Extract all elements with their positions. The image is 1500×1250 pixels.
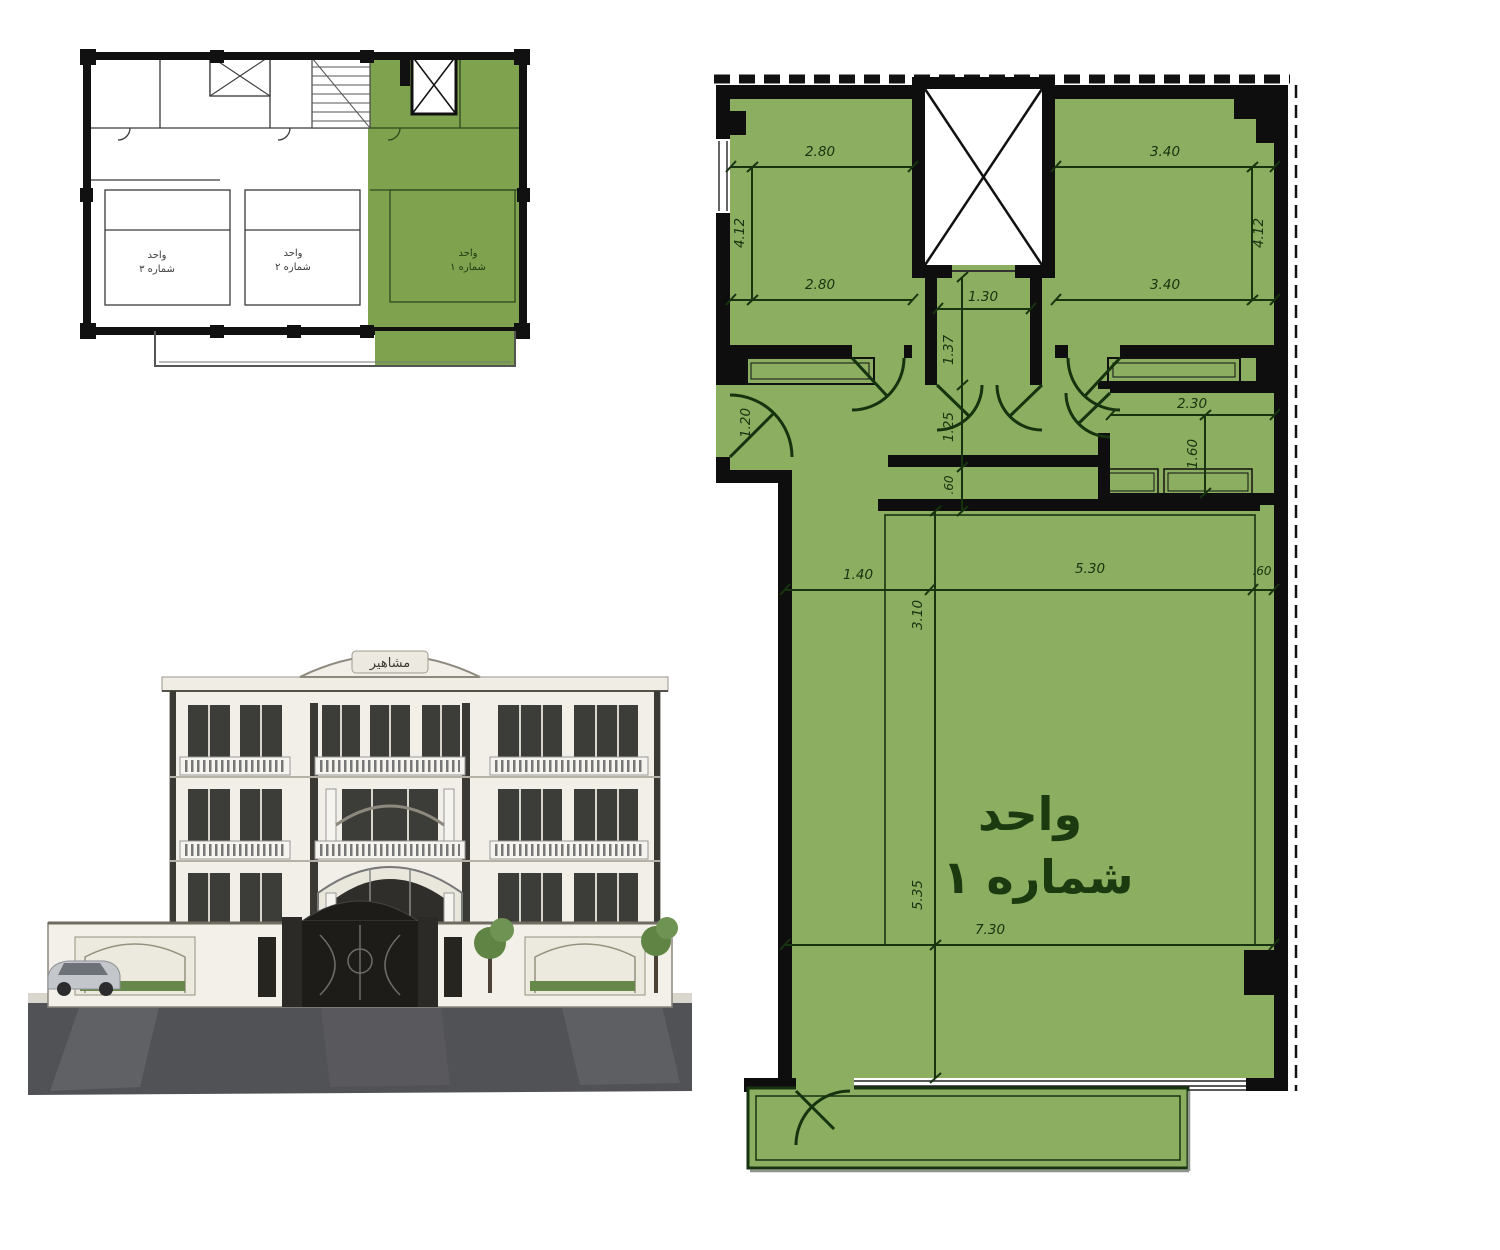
floor-overview-plan: واحد شماره ٣ واحد شماره ٢ واحد شماره ١ — [60, 40, 550, 380]
dim-lobby-height: 1.37 — [941, 335, 957, 365]
road — [28, 993, 692, 1095]
building-sign-text: مشاهیر — [369, 656, 410, 671]
dim-bed1-top: 2.80 — [805, 144, 835, 160]
overview-balcony — [155, 331, 515, 366]
overview-unit1-label-2: شماره ١ — [450, 262, 486, 273]
dim-living-w: 7.30 — [975, 922, 1005, 938]
dim-wc-width: 2.30 — [1177, 396, 1207, 412]
dim-counter-depth: .60 — [942, 475, 956, 494]
overview-unit1-label-1: واحد — [458, 248, 477, 259]
dim-entry-width: 1.20 — [738, 408, 754, 438]
dim-living-h: 5.35 — [910, 880, 926, 910]
overview-unit3-label-2: شماره ٣ — [139, 264, 175, 275]
unit1-floor-plan: 2.80 2.80 4.12 3.40 3.40 4.12 1.30 1.37 … — [700, 55, 1310, 1195]
dim-bed2-top: 3.40 — [1150, 144, 1180, 160]
unit-name-line1: واحد — [978, 787, 1082, 841]
page: { "overview": { "unit1": { "line1": "واح… — [0, 0, 1500, 1250]
dim-wc-height: 1.60 — [1185, 439, 1201, 469]
balcony — [744, 1078, 1189, 1171]
side-door-left — [258, 937, 276, 997]
wall-niche-right — [525, 937, 645, 995]
overview-staircase — [312, 58, 370, 128]
elevator-shaft — [912, 77, 1055, 278]
dim-lobby-width: 1.30 — [968, 289, 998, 305]
overview-unit3-label-1: واحد — [147, 250, 166, 261]
side-door-right — [444, 937, 462, 997]
dim-living-v: 3.10 — [910, 600, 926, 630]
dim-bed1-bottom: 2.80 — [805, 277, 835, 293]
dim-bed2-bottom: 3.40 — [1150, 277, 1180, 293]
dim-living-c: .60 — [1252, 564, 1271, 578]
unit-name-line2: شماره ١ — [942, 850, 1133, 904]
overview-unit2-label-2: شماره ٢ — [275, 262, 311, 273]
dim-living-b: 5.30 — [1075, 561, 1105, 577]
overview-unit2-label-1: واحد — [283, 248, 302, 259]
left-wall-window — [716, 139, 730, 213]
dim-bed2-height: 4.12 — [1251, 218, 1267, 248]
floor-middle — [170, 789, 660, 861]
dim-hall-height: 1.25 — [941, 412, 957, 442]
building-render: مشاهیر — [20, 625, 700, 1095]
dim-bed1-height: 4.12 — [732, 218, 748, 248]
dim-living-a: 1.40 — [843, 567, 873, 583]
